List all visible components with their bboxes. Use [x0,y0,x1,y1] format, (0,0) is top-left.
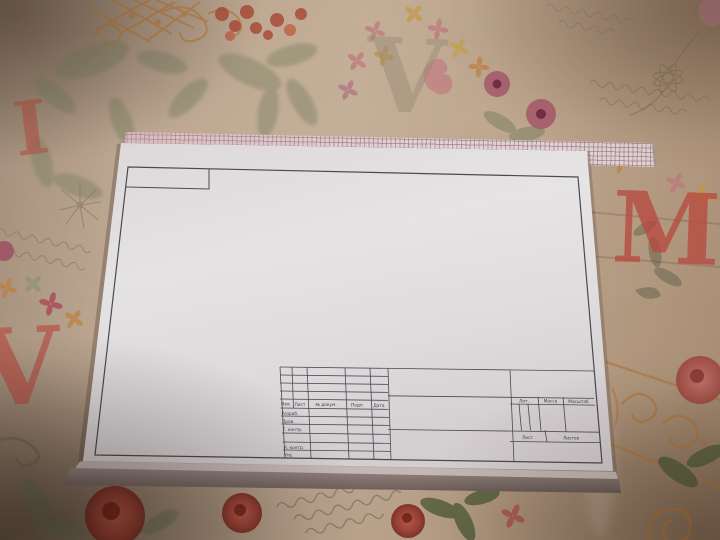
label-massa: Масса [544,399,558,405]
label-izm: Изм. [281,402,291,408]
label-lit: Лит. [519,398,529,404]
drawing-sheet-layer: Изм. Лист № докум. Подп. Дата Разраб. Пр… [0,0,720,540]
label-masshtab: Масштаб [568,399,589,405]
label-listov: Листов [563,436,580,442]
label-razrab: Разраб. [282,411,299,417]
label-podp: Подп. [351,403,364,409]
label-list-col: Лист [295,402,306,408]
label-nkontr: Н. контр. [284,445,305,451]
drawing-sheet-paper[interactable] [83,143,613,471]
label-list-row: Лист [522,435,533,441]
label-doc: № докум. [315,402,336,408]
photo-drawing-pad-on-floral-fabric: V M I V [0,0,720,540]
label-utv: Утв. [284,453,293,459]
label-tkontr: Т. контр. [282,427,303,433]
label-prov: Пров. [282,419,295,425]
label-data: Дата [373,403,384,409]
